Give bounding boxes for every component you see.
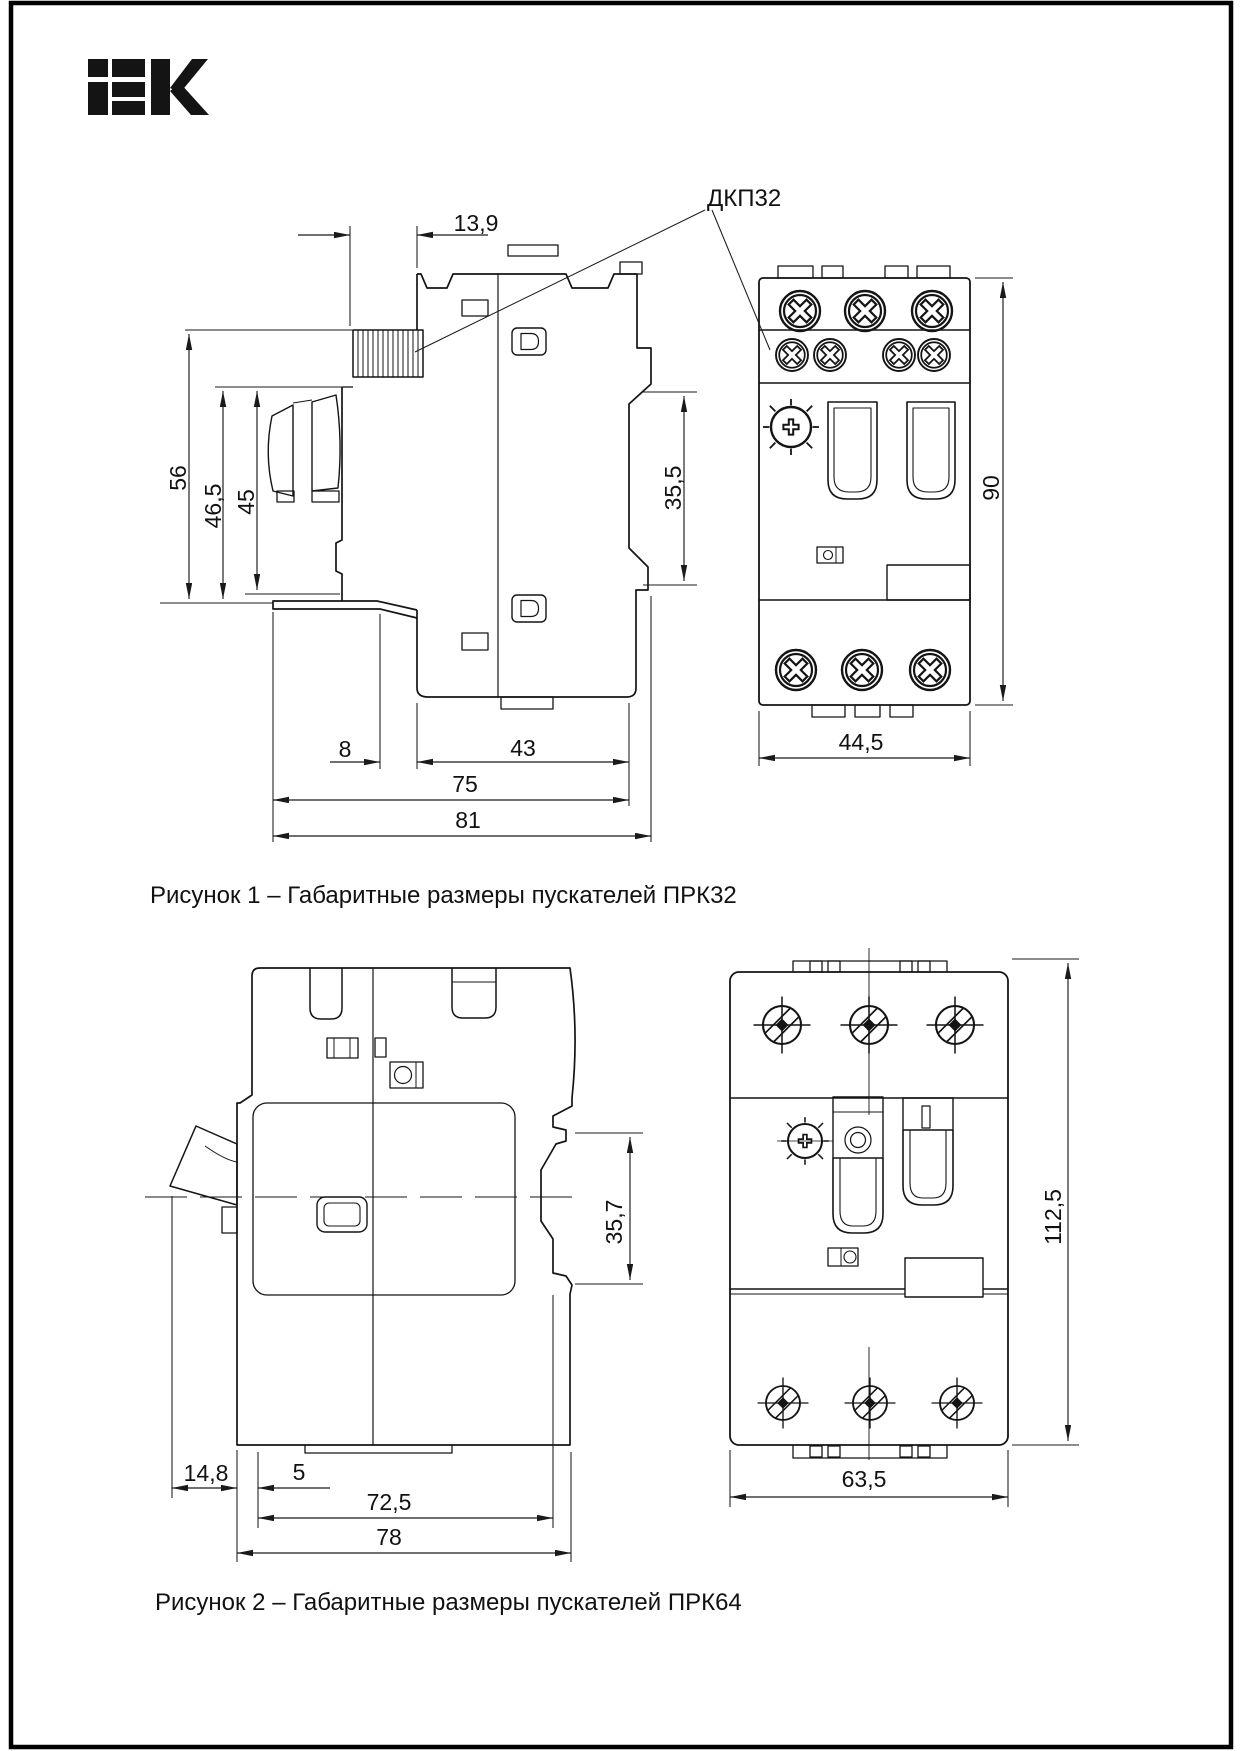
iek-logo xyxy=(88,59,209,115)
mounting-base xyxy=(273,601,417,618)
logo-k-lower-arm xyxy=(170,83,209,115)
figure2-caption: Рисунок 2 – Габаритные размеры пускателе… xyxy=(155,1589,742,1616)
slot-block xyxy=(327,1038,358,1058)
logo-e-bottom xyxy=(112,101,145,115)
marking-field xyxy=(887,565,970,600)
dim-height-mid: 46,5 xyxy=(200,484,226,529)
vent-slot-top xyxy=(508,245,558,256)
din-clamp-ribbed-block xyxy=(353,330,423,377)
dim-top-offset: 13,9 xyxy=(454,210,499,236)
terminal-clamp-2 xyxy=(452,968,496,1018)
current-adjust-dial xyxy=(763,399,819,455)
slot-lower xyxy=(462,633,488,650)
marking-field-2 xyxy=(905,1258,983,1297)
dim-depth-body-2: 72,5 xyxy=(367,1489,412,1515)
center-module xyxy=(833,1097,883,1233)
foot-tab-bottom xyxy=(501,697,553,709)
terminal-screws-bottom xyxy=(776,650,950,690)
dim-front-height-1: 90 xyxy=(978,475,1004,501)
dim-front-height-2: 112,5 xyxy=(1040,1189,1066,1245)
terminal-screws-top xyxy=(776,291,952,371)
rear-tab-top xyxy=(620,262,642,274)
logo-i-stem xyxy=(88,82,108,115)
figure2-drawing: 35,7 14,8 5 72,5 78 112,5 63,5 Ри xyxy=(145,948,1079,1616)
prk64-front-view xyxy=(730,948,1008,1460)
logo-e-top xyxy=(112,59,145,77)
d-clip-lower xyxy=(512,595,546,622)
dkp32-label: ДКП32 xyxy=(707,185,781,212)
prk32-front-view xyxy=(759,266,970,717)
mounting-screws-bottom xyxy=(758,1378,983,1429)
dim-rail-height-2: 35,7 xyxy=(601,1200,627,1245)
dim-depth-body: 75 xyxy=(452,771,478,797)
document-page: ДКП32 13,9 56 46,5 45 35,5 xyxy=(0,0,1241,1751)
mounting-screws-top xyxy=(754,997,984,1054)
dim-lever-offset: 14,8 xyxy=(184,1460,229,1486)
right-module xyxy=(903,1098,953,1205)
dim-depth-total: 81 xyxy=(455,807,481,833)
dim-depth-front: 8 xyxy=(339,736,352,762)
toggle-knob xyxy=(268,395,340,502)
logo-k-stem xyxy=(151,59,170,115)
prk32-side-view xyxy=(268,245,651,709)
dim-front-width-1: 44,5 xyxy=(839,729,884,755)
logo-i-dot xyxy=(88,59,108,77)
prk64-side-view xyxy=(145,968,585,1453)
dim-front-width-2: 63,5 xyxy=(842,1466,887,1492)
dim-foot-offset: 5 xyxy=(293,1459,306,1485)
state-indicator xyxy=(817,547,843,563)
state-indicator-2 xyxy=(828,1248,858,1266)
logo-e-mid xyxy=(112,82,145,97)
figure1-drawing: ДКП32 13,9 56 46,5 45 35,5 xyxy=(150,185,1013,909)
d-clip-upper xyxy=(512,328,546,355)
side-outline-2 xyxy=(237,968,575,1445)
dim-rail-height-1: 35,5 xyxy=(660,466,686,511)
start-stop-buttons xyxy=(828,402,955,499)
front-panel xyxy=(253,1103,515,1295)
dim-height-inner: 45 xyxy=(233,489,259,515)
slot-upper xyxy=(462,300,488,316)
dim-depth-total-2: 78 xyxy=(376,1524,402,1550)
dim-height-total: 56 xyxy=(165,465,191,491)
operating-lever xyxy=(170,1126,237,1233)
terminal-clamp-1 xyxy=(310,968,342,1019)
dim-depth-rear: 43 xyxy=(510,735,536,761)
side-outline xyxy=(417,274,651,697)
figure1-caption: Рисунок 1 – Габаритные размеры пускателе… xyxy=(150,882,737,909)
